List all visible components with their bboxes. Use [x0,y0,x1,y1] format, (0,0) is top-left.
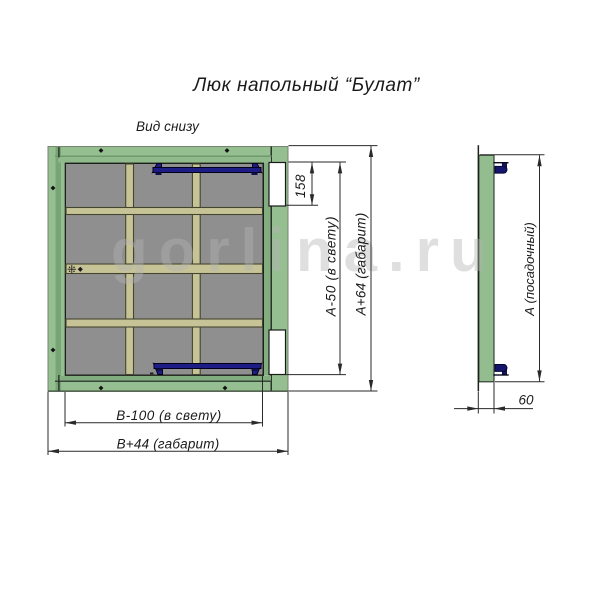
svg-text:Вид снизу: Вид снизу [136,119,200,134]
svg-text:В+44 (габарит): В+44 (габарит) [117,437,220,452]
svg-text:А+64 (габарит): А+64 (габарит) [354,213,369,317]
svg-text:Люк напольный “Булат”: Люк напольный “Булат” [191,75,421,96]
svg-text:А (посадочный): А (посадочный) [522,222,537,317]
svg-text:60: 60 [518,393,534,408]
svg-text:gorlina.ru: gorlina.ru [111,217,498,284]
svg-text:В-100 (в свету): В-100 (в свету) [116,408,222,423]
svg-text:158: 158 [293,174,308,198]
svg-text:А-50 (в свету): А-50 (в свету) [324,216,339,317]
